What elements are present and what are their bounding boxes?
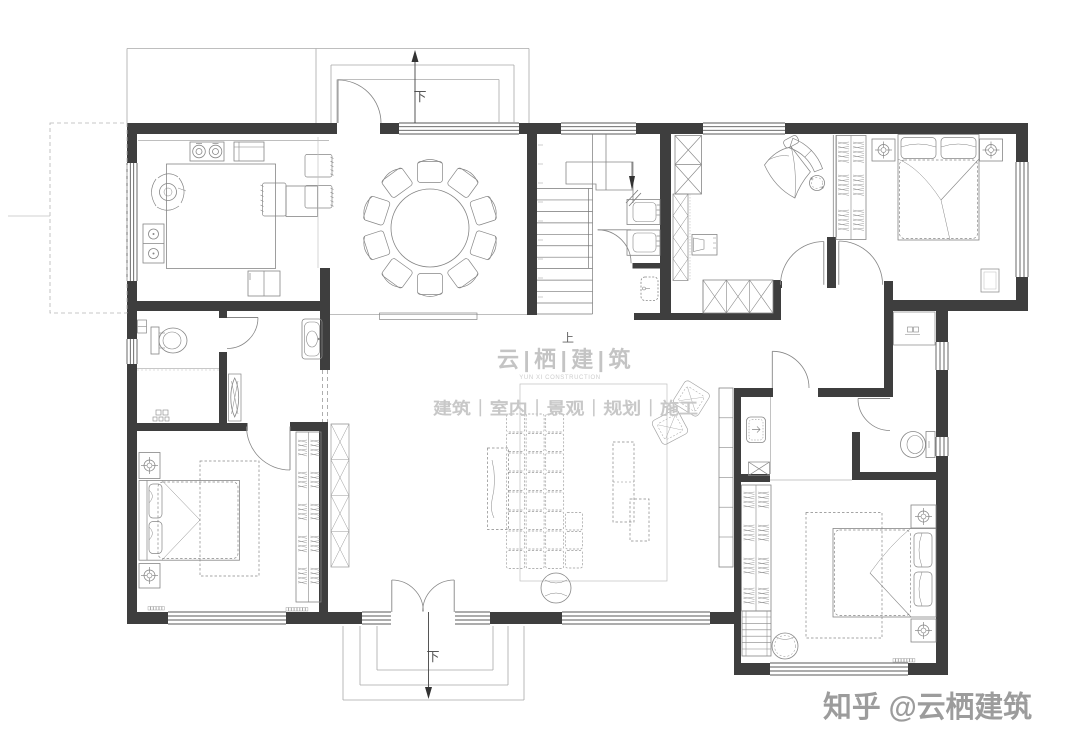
svg-text:上: 上: [562, 331, 574, 345]
svg-text:云|栖|建|筑: 云|栖|建|筑: [497, 347, 635, 372]
svg-text:建筑｜室内｜景观｜规划｜施工: 建筑｜室内｜景观｜规划｜施工: [433, 398, 698, 418]
svg-text:YUN XI CONSTRUCTION: YUN XI CONSTRUCTION: [519, 375, 600, 381]
svg-text:知乎 @云栖建筑: 知乎 @云栖建筑: [823, 691, 1032, 724]
